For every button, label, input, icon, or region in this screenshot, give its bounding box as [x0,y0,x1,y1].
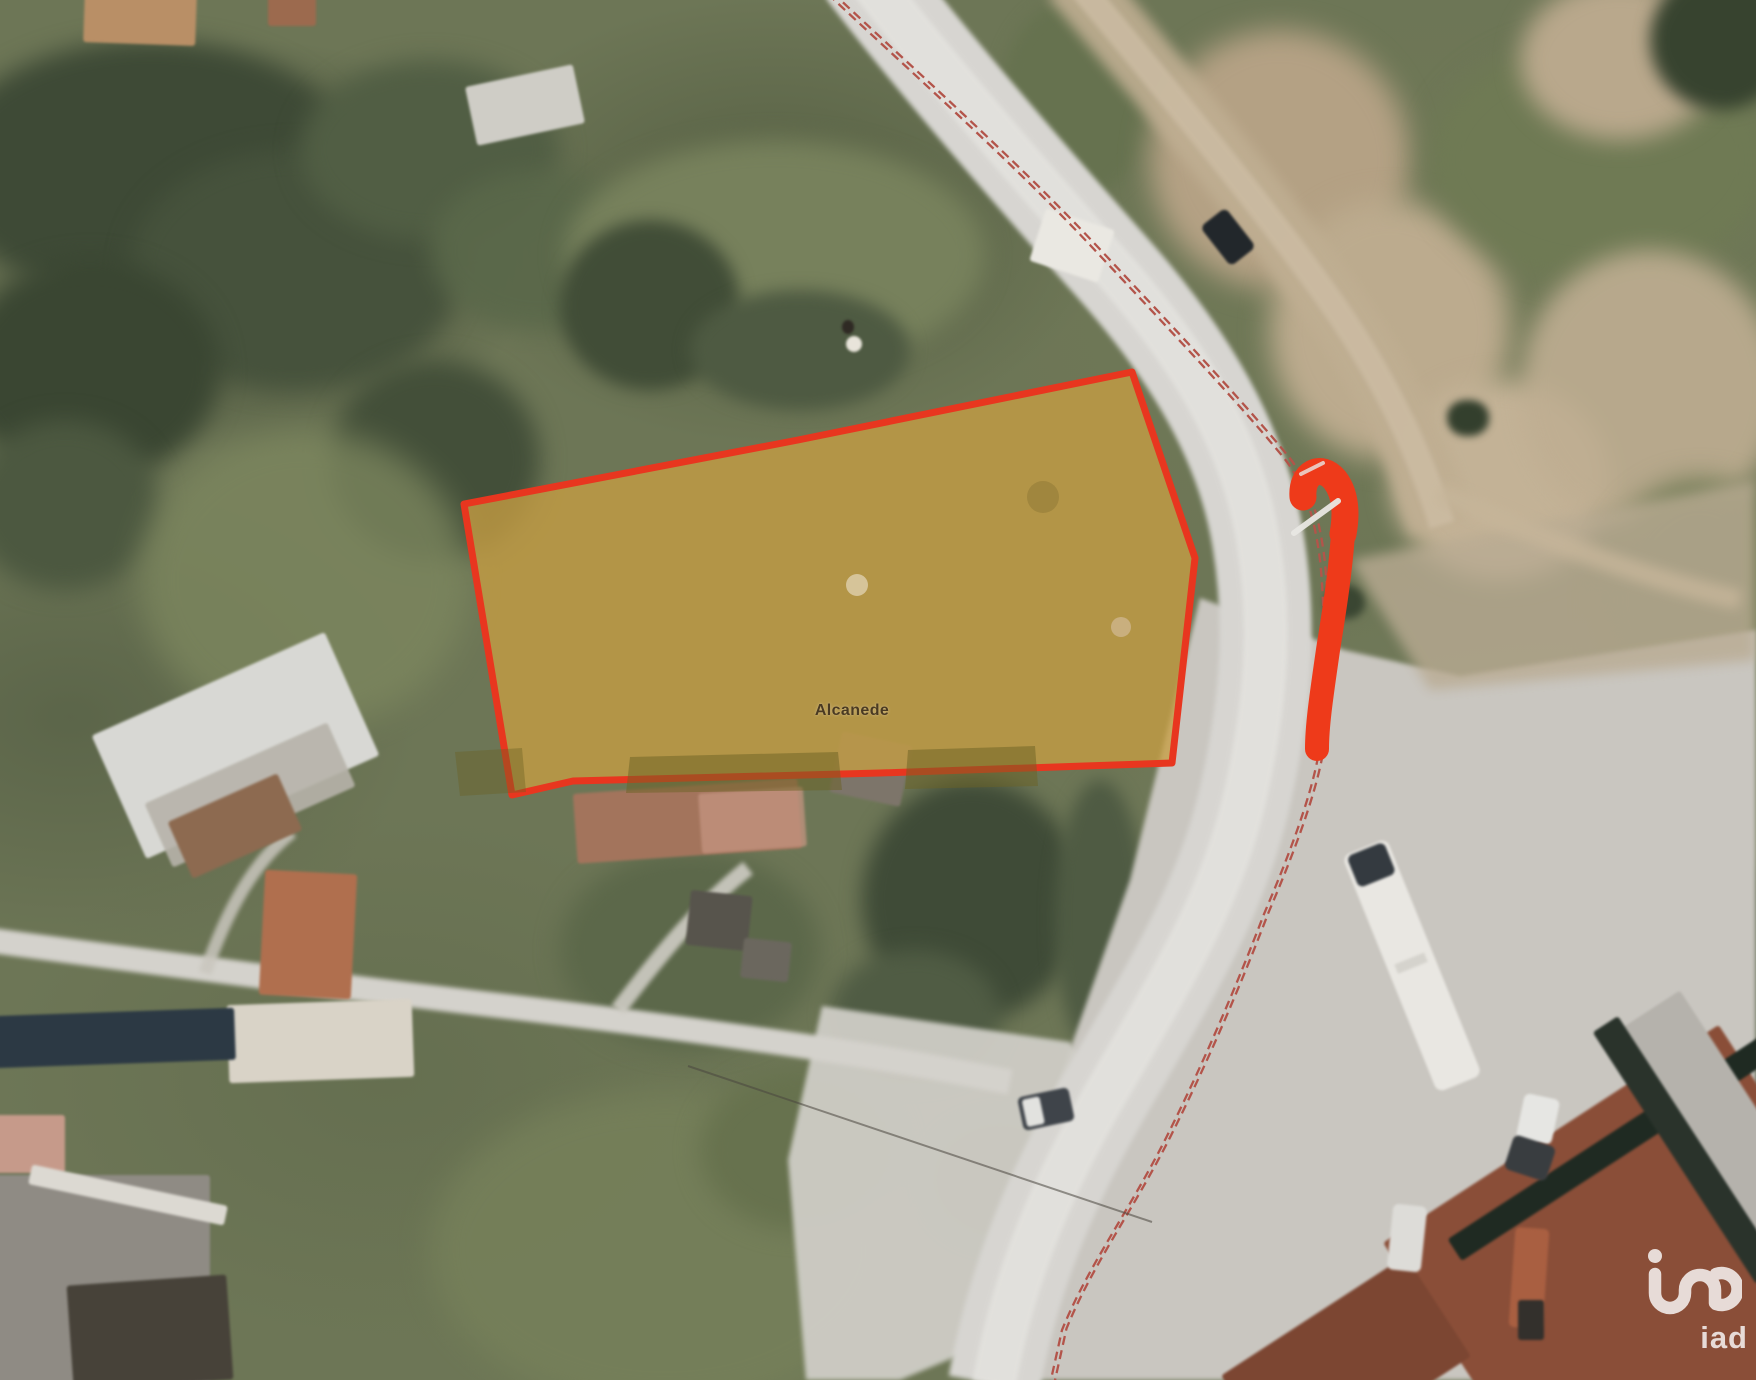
parcel-dark-patch [626,752,842,793]
annotation-layer [0,0,1756,1380]
iad-watermark: iad [1630,1246,1754,1356]
power-line [688,1066,1152,1222]
place-label: Alcanede [782,702,922,720]
parcel-soil-spot [1027,481,1059,513]
parcel-polygon [455,372,1195,796]
parcel-bale [1111,617,1131,637]
parcel-dark-patch [455,748,526,796]
satellite-map: Alcanede iad [0,0,1756,1380]
iad-logo-icon [1642,1246,1742,1326]
iad-brand-text: iad [1630,1320,1754,1356]
parcel-bale [846,574,868,596]
marker-scribble [1294,463,1345,749]
parcel-dark-patch [905,746,1038,789]
